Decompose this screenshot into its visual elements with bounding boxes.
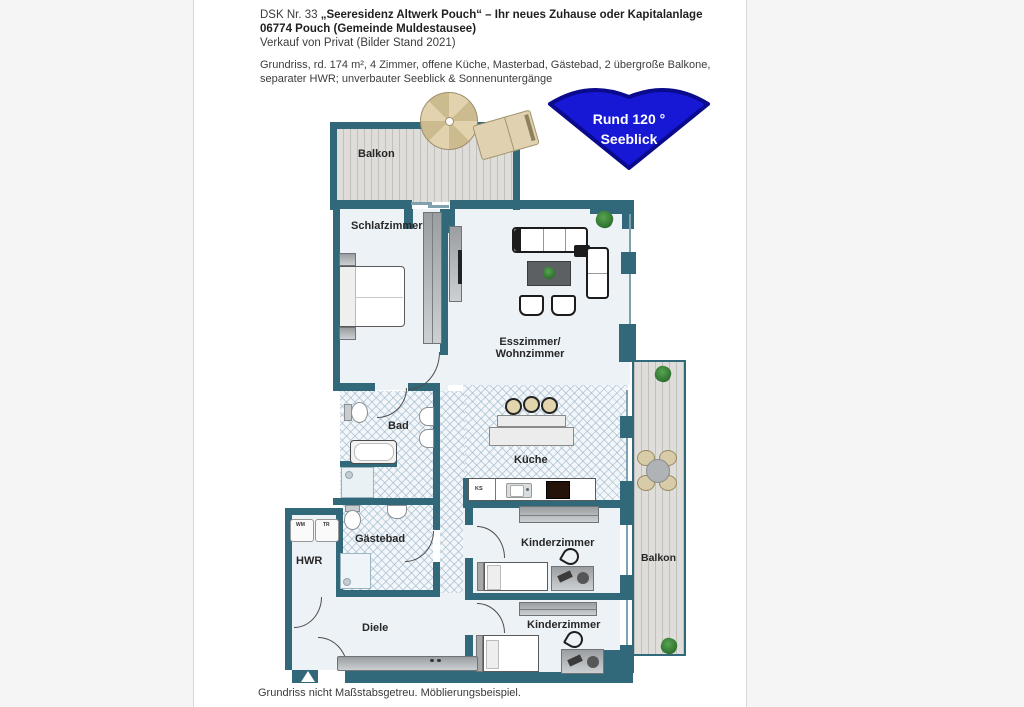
washing-machine-label: WM (296, 522, 305, 528)
bar-stool (541, 397, 558, 414)
room-label-wohnzimmer: Wohnzimmer (478, 348, 582, 360)
wall (465, 508, 473, 525)
kids-bed (484, 562, 548, 591)
fridge-label: KS (475, 486, 483, 492)
wall (620, 645, 634, 673)
stove (546, 481, 570, 499)
wall (450, 200, 600, 209)
wall (465, 593, 633, 600)
room-label-gaestebad: Gästebad (355, 533, 405, 545)
room-label-schlafzimmer: Schlafzimmer (351, 220, 423, 232)
room-label-bad: Bad (388, 420, 409, 432)
sink (506, 483, 532, 498)
nightstand (339, 253, 356, 266)
room-label-wohnbereich: Esszimmer/ Wohnzimmer (478, 336, 582, 360)
room-label-kueche: Küche (514, 454, 548, 466)
dryer-label: TR (323, 522, 330, 528)
tv (458, 250, 462, 284)
sideboard (337, 656, 478, 671)
wardrobe (519, 602, 597, 616)
room-label-kinderzimmer1: Kinderzimmer (521, 537, 594, 549)
kids-bed (483, 635, 539, 672)
balcony-right (632, 360, 686, 656)
room-label-hwr: HWR (296, 555, 322, 567)
wall (333, 498, 440, 505)
corridor-tiles (440, 391, 465, 593)
shower (341, 467, 374, 498)
nightstand (339, 327, 356, 340)
door-gap-floor (440, 355, 448, 391)
desk (561, 649, 604, 674)
sun-lounger (472, 109, 540, 160)
loveseat (586, 247, 609, 299)
bar-stool (523, 396, 540, 413)
washbasin (419, 407, 434, 426)
wall (619, 324, 636, 362)
dining-island (489, 427, 574, 446)
armchair (551, 295, 576, 316)
wall (285, 508, 343, 515)
kitchen-counter: KS (468, 478, 596, 501)
room-label-esszimmer: Esszimmer/ (478, 336, 582, 348)
wardrobe (519, 506, 599, 523)
wall (620, 505, 634, 525)
washbasin (419, 429, 434, 448)
footer-note: Grundriss nicht Maßstabsgetreu. Möblieru… (258, 687, 521, 699)
parasol-pole (445, 117, 454, 126)
wardrobe (423, 212, 442, 344)
desk (551, 566, 594, 591)
wall (620, 575, 634, 600)
washing-machine: WM (290, 519, 314, 542)
room-label-kinderzimmer2: Kinderzimmer (527, 619, 600, 631)
wall (330, 122, 337, 210)
floor-plan: KS WM TR (0, 0, 1024, 707)
wall (465, 558, 473, 593)
wall (620, 481, 634, 502)
sliding-door (428, 205, 449, 208)
toilet-bowl (344, 510, 361, 530)
entrance-arrow (301, 671, 315, 682)
wall (333, 383, 375, 391)
room-label-balkon-right: Balkon (641, 552, 676, 564)
bathtub (350, 440, 397, 464)
dryer: TR (315, 519, 339, 542)
wall (433, 562, 440, 593)
wall (345, 670, 480, 683)
room-label-diele: Diele (362, 622, 388, 634)
wall (336, 590, 440, 597)
bar-stool (505, 398, 522, 415)
room-label-balkon-top: Balkon (358, 148, 395, 160)
wall (620, 416, 634, 438)
kids-bed-headboard (477, 562, 484, 591)
wall (333, 200, 412, 209)
shower (340, 553, 371, 589)
wall (621, 252, 636, 274)
armchair (519, 295, 544, 316)
double-bed (339, 266, 405, 327)
wall (433, 383, 440, 530)
balcony-table (646, 459, 670, 483)
wall (622, 209, 634, 229)
toilet-bowl (351, 402, 368, 423)
dining-island (497, 415, 566, 427)
